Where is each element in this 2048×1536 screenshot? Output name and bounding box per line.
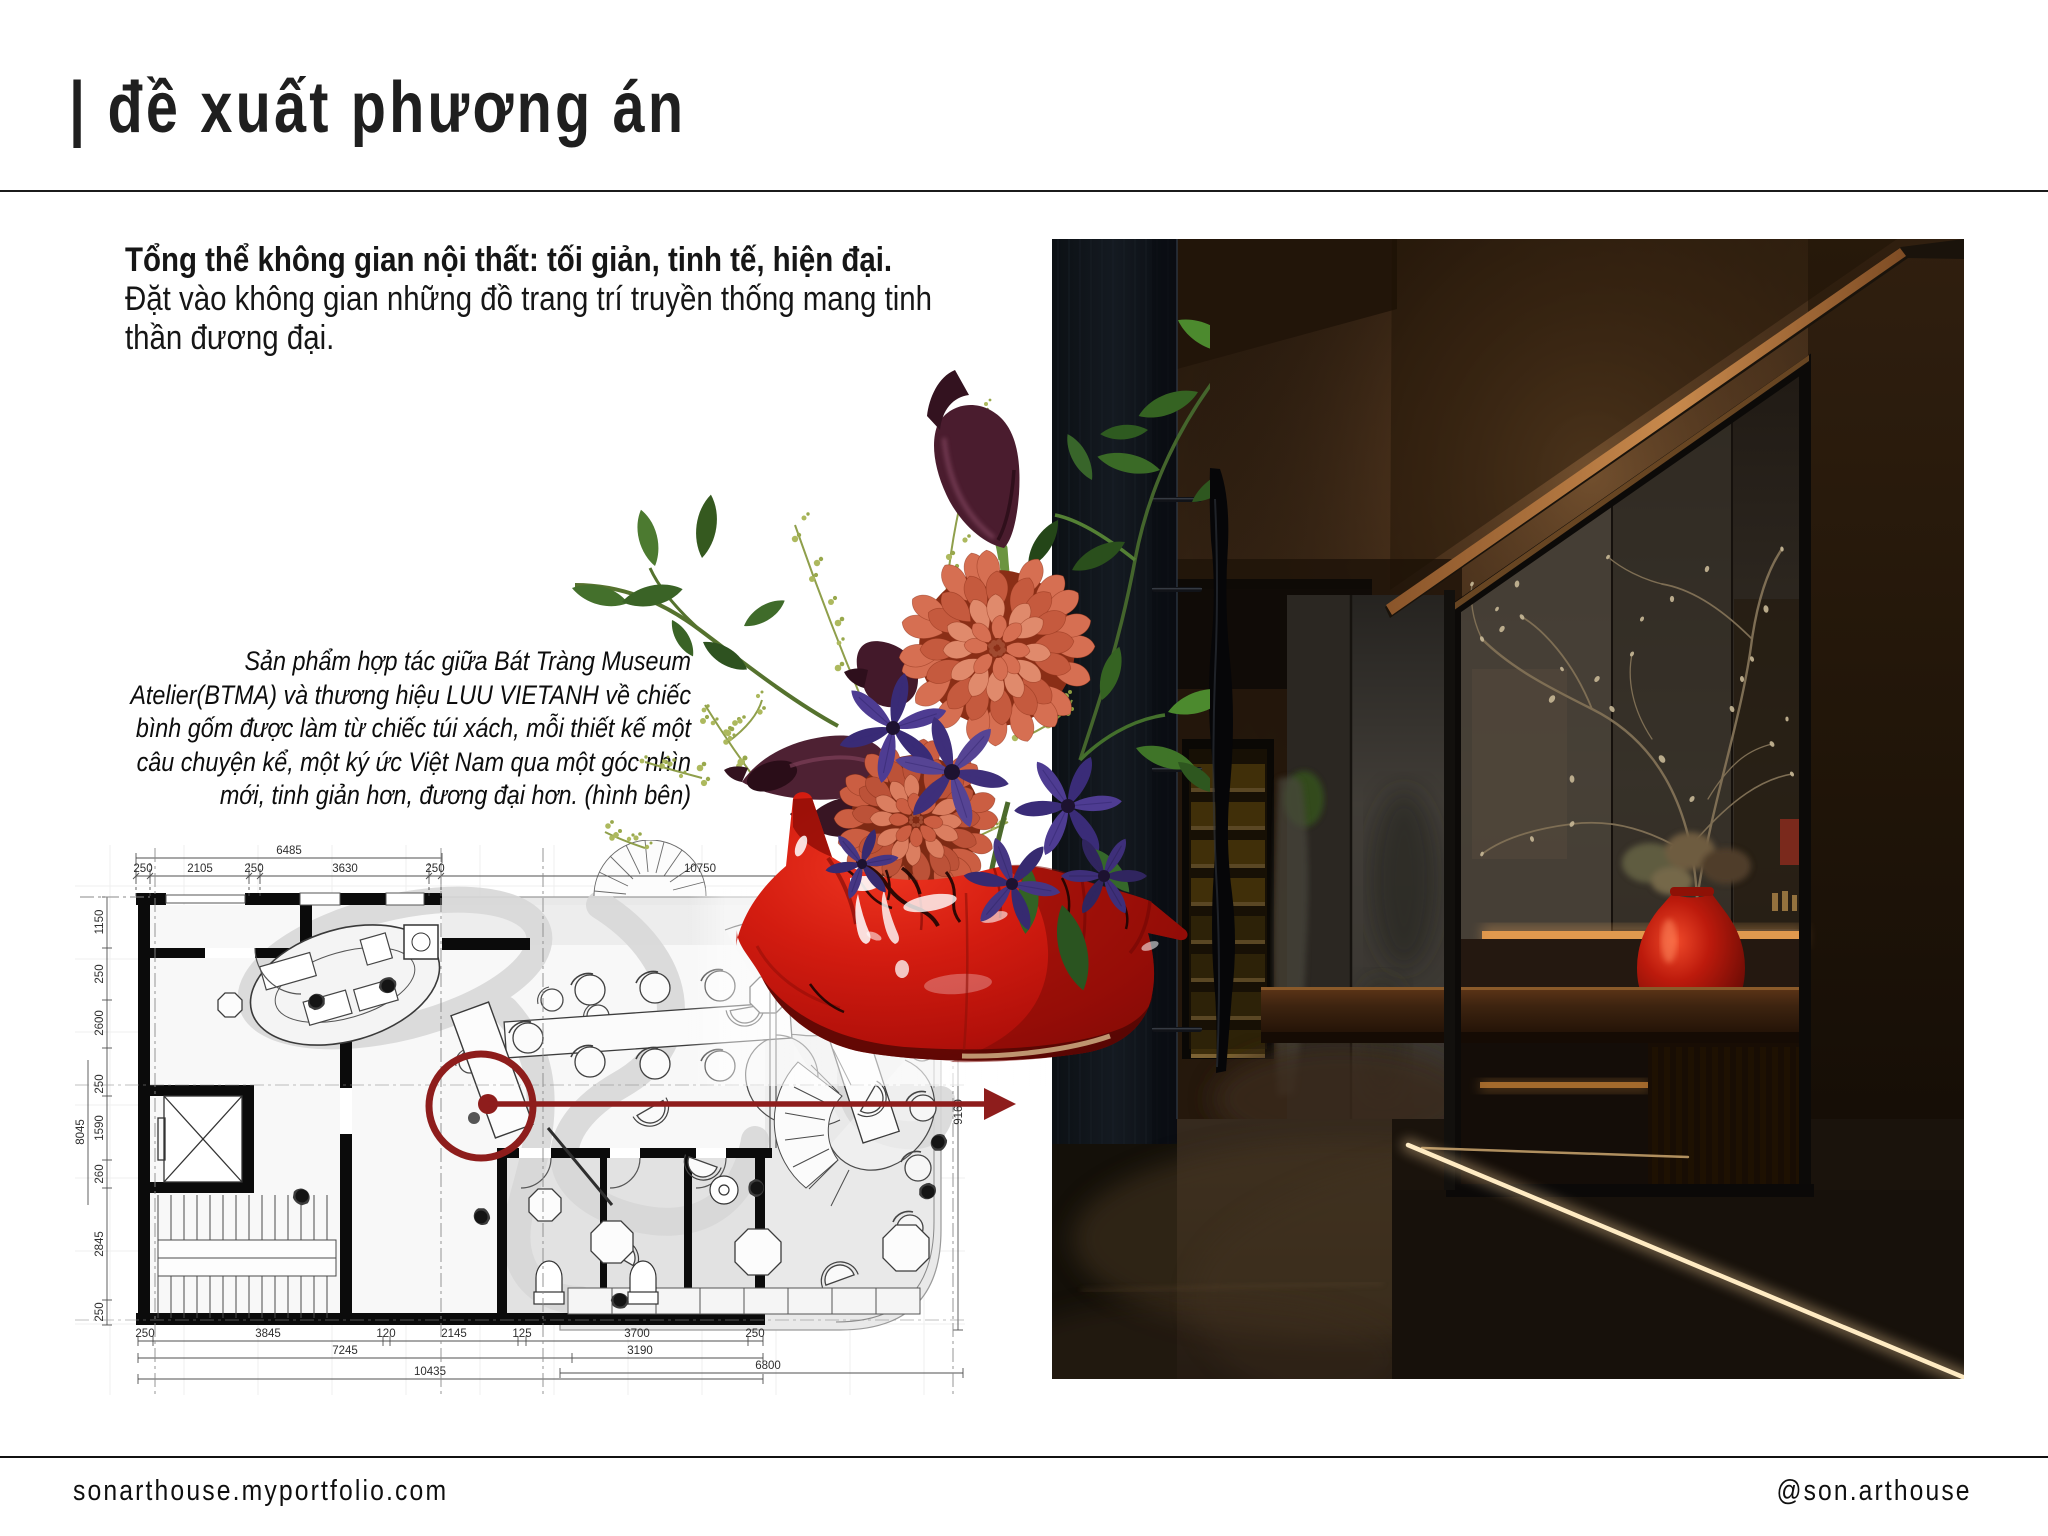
svg-text:2145: 2145 bbox=[441, 1328, 467, 1340]
svg-text:10435: 10435 bbox=[414, 1366, 446, 1378]
svg-text:3190: 3190 bbox=[627, 1345, 653, 1357]
svg-text:250: 250 bbox=[94, 1074, 106, 1093]
svg-text:6485: 6485 bbox=[276, 845, 302, 857]
svg-text:1150: 1150 bbox=[94, 910, 106, 935]
svg-text:260: 260 bbox=[94, 1164, 106, 1183]
svg-text:2105: 2105 bbox=[187, 863, 213, 875]
svg-text:250: 250 bbox=[94, 964, 106, 983]
svg-text:1590: 1590 bbox=[94, 1115, 106, 1141]
svg-text:250: 250 bbox=[94, 1302, 106, 1321]
svg-text:3700: 3700 bbox=[624, 1328, 650, 1340]
svg-text:250: 250 bbox=[425, 863, 444, 875]
svg-text:7245: 7245 bbox=[332, 1345, 358, 1357]
svg-text:250: 250 bbox=[745, 1328, 764, 1340]
svg-text:2600: 2600 bbox=[94, 1010, 106, 1036]
svg-text:3630: 3630 bbox=[332, 863, 358, 875]
svg-text:250: 250 bbox=[133, 863, 152, 875]
svg-text:2845: 2845 bbox=[94, 1231, 106, 1257]
svg-text:8045: 8045 bbox=[75, 1119, 87, 1145]
svg-text:250: 250 bbox=[135, 1328, 154, 1340]
svg-text:3845: 3845 bbox=[255, 1328, 281, 1340]
svg-text:6800: 6800 bbox=[755, 1360, 781, 1372]
svg-text:125: 125 bbox=[512, 1328, 531, 1340]
svg-text:250: 250 bbox=[244, 863, 263, 875]
svg-text:120: 120 bbox=[376, 1328, 395, 1340]
